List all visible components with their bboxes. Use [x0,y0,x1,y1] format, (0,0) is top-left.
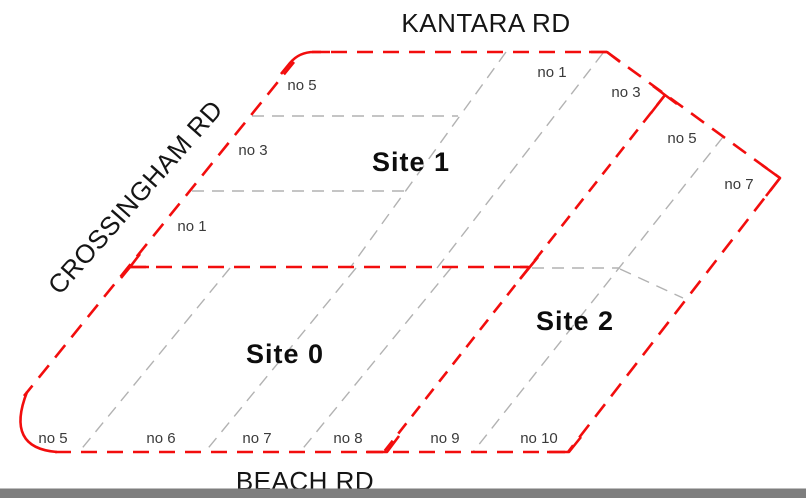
lot-label: no 7 [242,430,271,447]
lot-label: no 5 [38,430,67,447]
site-plan-canvas: KANTARA RD CROSSINGHAM RD BEACH RD Site … [0,0,806,498]
lot-label: no 9 [430,430,459,447]
lot-label: no 8 [333,430,362,447]
corner-far-right [762,165,780,196]
road-label-crossingham: CROSSINGHAM RD [42,94,229,300]
lot-label: no 7 [724,176,753,193]
lot-labels-kantara: no 1 no 3 no 5 no 7 [537,64,753,193]
lot-label: no 10 [520,430,558,447]
junction-divider-top [651,86,677,113]
lot-label: no 6 [146,430,175,447]
junction-midline-left [121,254,149,278]
lot-label: no 1 [177,218,206,235]
lot-line-site2-long [473,137,723,452]
site-label-1: Site 1 [372,147,450,177]
lot-line-site1-b [437,53,603,268]
lot-label: no 3 [611,84,640,101]
lot-boundary-lines [79,52,723,452]
boundary-topright-edge [607,52,780,178]
site-boundary-lines [24,52,780,453]
lot-label: no 5 [287,77,316,94]
site-plan-page: KANTARA RD CROSSINGHAM RD BEACH RD Site … [0,0,806,498]
junction-beach-divider [366,436,399,452]
boundary-corner-accents [20,52,780,452]
road-label-kantara: KANTARA RD [401,8,570,38]
lot-labels-crossingham: no 5 no 3 no 1 [177,77,316,235]
corner-topright [589,52,620,62]
bottom-gray-bar [0,489,806,498]
lot-line-site0-a [79,268,230,452]
site-label-0: Site 0 [246,339,324,369]
site-label-2: Site 2 [536,306,614,336]
lot-label: no 3 [238,142,267,159]
lot-label: no 5 [667,130,696,147]
lot-label: no 1 [537,64,566,81]
lot-line-site2-road-parallel [620,269,683,298]
